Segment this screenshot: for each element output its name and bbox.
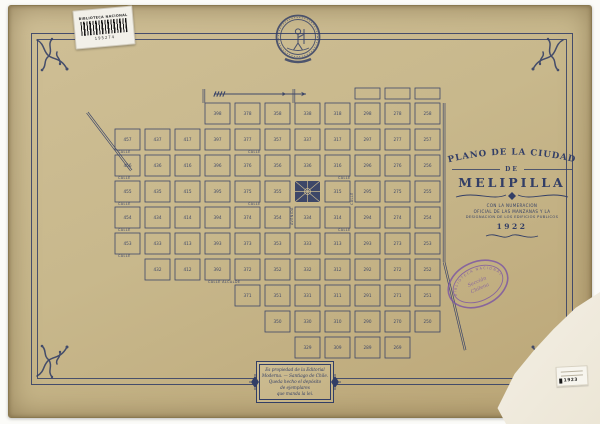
street-label: CALLE bbox=[118, 228, 131, 232]
flourish-icon bbox=[329, 374, 341, 390]
block-number: 397 bbox=[214, 137, 222, 142]
street-label: CALLE bbox=[248, 202, 261, 206]
block-number: 332 bbox=[304, 267, 312, 272]
block-number: 434 bbox=[154, 215, 162, 220]
street-label: AVENIDA bbox=[290, 207, 294, 225]
block-number: 315 bbox=[334, 189, 342, 194]
block-number: 377 bbox=[244, 137, 252, 142]
block-number: 294 bbox=[364, 215, 372, 220]
block-number: 252 bbox=[424, 267, 432, 272]
block-number: 358 bbox=[274, 111, 282, 116]
block-number: 275 bbox=[394, 189, 402, 194]
block-number: 298 bbox=[364, 111, 372, 116]
divider-flourish-icon bbox=[452, 191, 572, 201]
faded-writing bbox=[561, 374, 583, 376]
subtitle-line: DESIGNACION DE LOS EDIFICIOS PUBLICOS bbox=[444, 215, 580, 220]
block-number: 355 bbox=[274, 189, 282, 194]
svg-text:PLANO DE LA CIUDAD: PLANO DE LA CIUDAD bbox=[447, 147, 577, 165]
block-number: 352 bbox=[274, 267, 282, 272]
block-number: 310 bbox=[334, 319, 342, 324]
block-number: 455 bbox=[124, 189, 132, 194]
block-number: 314 bbox=[334, 215, 342, 220]
block-number: 253 bbox=[424, 241, 432, 246]
flourish-icon bbox=[249, 374, 261, 390]
imprint-line: que manda la lei. bbox=[277, 391, 314, 397]
block-number: 292 bbox=[364, 267, 372, 272]
block-number: 435 bbox=[154, 189, 162, 194]
block-number: 291 bbox=[364, 293, 372, 298]
city-block bbox=[355, 88, 380, 99]
block-number: 454 bbox=[124, 215, 132, 220]
publisher-seal-icon bbox=[274, 13, 322, 67]
block-number: 354 bbox=[274, 215, 282, 220]
block-number: 432 bbox=[154, 267, 162, 272]
block-number: 313 bbox=[334, 241, 342, 246]
block-number: 274 bbox=[394, 215, 402, 220]
block-number: 250 bbox=[424, 319, 432, 324]
block-number: 353 bbox=[274, 241, 282, 246]
block-number: 338 bbox=[304, 111, 312, 116]
block-number: 350 bbox=[274, 319, 282, 324]
street-label: CALLE bbox=[118, 254, 131, 258]
block-number: 293 bbox=[364, 241, 372, 246]
scanned-map-page: 3983783583383182982782584574374173973773… bbox=[0, 0, 600, 424]
block-number: 392 bbox=[214, 267, 222, 272]
street-label: CALLE bbox=[118, 176, 131, 180]
catalog-number: 1923 bbox=[564, 378, 578, 384]
city-name: MELIPILLA bbox=[444, 175, 580, 190]
block-number: 296 bbox=[364, 163, 372, 168]
imprint-text: Es propiedad de la Editorial Moderna. — … bbox=[259, 364, 331, 400]
block-number: 374 bbox=[244, 215, 252, 220]
block-number: 437 bbox=[154, 137, 162, 142]
flourish-rule bbox=[524, 169, 572, 170]
block-number: 270 bbox=[394, 319, 402, 324]
block-number: 271 bbox=[394, 293, 402, 298]
block-number: 337 bbox=[304, 137, 312, 142]
street-label: CALLE bbox=[118, 150, 131, 154]
block-number: 255 bbox=[424, 189, 432, 194]
subtitle-block: CON LA NUMERACION OFICIAL DE LAS MANZANA… bbox=[444, 203, 580, 220]
street-label: CALLE bbox=[118, 202, 131, 206]
block-number: 417 bbox=[184, 137, 192, 142]
block-number: 373 bbox=[244, 241, 252, 246]
barcode-icon bbox=[80, 18, 127, 36]
block-number: 357 bbox=[274, 137, 282, 142]
city-block bbox=[415, 88, 440, 99]
block-number: 372 bbox=[244, 267, 252, 272]
block-number: 356 bbox=[274, 163, 282, 168]
block-number: 456 bbox=[124, 163, 132, 168]
block-number: 334 bbox=[304, 215, 312, 220]
block-number: 330 bbox=[304, 319, 312, 324]
barcode-sticker: BIBLIOTECA NACIONAL 195274 bbox=[72, 5, 135, 49]
block-number: 278 bbox=[394, 111, 402, 116]
block-number: 416 bbox=[184, 163, 192, 168]
block-number: 290 bbox=[364, 319, 372, 324]
block-number: 396 bbox=[214, 163, 222, 168]
block-number: 297 bbox=[364, 137, 372, 142]
block-number: 273 bbox=[394, 241, 402, 246]
block-number: 453 bbox=[124, 241, 132, 246]
block-number: 257 bbox=[424, 137, 432, 142]
block-number: 457 bbox=[124, 137, 132, 142]
block-number: 333 bbox=[304, 241, 312, 246]
block-number: 289 bbox=[364, 345, 372, 350]
year-label: 1922 bbox=[444, 222, 580, 231]
block-number: 254 bbox=[424, 215, 432, 220]
year-flourish-icon bbox=[482, 232, 542, 240]
block-number: 371 bbox=[244, 293, 252, 298]
block-number: 276 bbox=[394, 163, 402, 168]
north-arrow-mark bbox=[283, 92, 287, 96]
street-label: CALLE bbox=[248, 150, 261, 154]
city-block bbox=[385, 88, 410, 99]
block-number: 414 bbox=[184, 215, 192, 220]
block-number: 436 bbox=[154, 163, 162, 168]
street-label: CALLE bbox=[350, 192, 354, 205]
title-cartouche: PLANO DE LA CIUDAD DE MELIPILLA CON LA N… bbox=[444, 141, 580, 240]
block-number: 311 bbox=[334, 293, 342, 298]
street-label: CALLE ALCALDE bbox=[208, 280, 240, 284]
block-number: 316 bbox=[334, 163, 342, 168]
block-number: 376 bbox=[244, 163, 252, 168]
block-number: 433 bbox=[154, 241, 162, 246]
catalog-sticker: 1923 bbox=[555, 365, 588, 387]
block-number: 329 bbox=[304, 345, 312, 350]
block-number: 351 bbox=[274, 293, 282, 298]
map-title: PLANO DE LA CIUDAD bbox=[444, 141, 580, 165]
block-number: 331 bbox=[304, 293, 312, 298]
block-number: 312 bbox=[334, 267, 342, 272]
ink-mark bbox=[559, 379, 562, 384]
block-number: 269 bbox=[394, 345, 402, 350]
title-de-row: DE bbox=[452, 166, 572, 173]
imprint-box: Es propiedad de la Editorial Moderna. — … bbox=[256, 361, 334, 403]
block-number: 398 bbox=[214, 111, 222, 116]
block-number: 258 bbox=[424, 111, 432, 116]
block-number: 393 bbox=[214, 241, 222, 246]
block-number: 251 bbox=[424, 293, 432, 298]
block-number: 395 bbox=[214, 189, 222, 194]
block-number: 295 bbox=[364, 189, 372, 194]
street-label: CALLE bbox=[338, 176, 351, 180]
block-number: 317 bbox=[334, 137, 342, 142]
block-number: 375 bbox=[244, 189, 252, 194]
block-number: 256 bbox=[424, 163, 432, 168]
block-number: 378 bbox=[244, 111, 252, 116]
block-number: 277 bbox=[394, 137, 402, 142]
block-number: 272 bbox=[394, 267, 402, 272]
street-label: CALLE bbox=[338, 228, 351, 232]
block-number: 412 bbox=[184, 267, 192, 272]
block-number: 394 bbox=[214, 215, 222, 220]
block-number: 415 bbox=[184, 189, 192, 194]
title-de-label: DE bbox=[505, 166, 519, 173]
block-number: 336 bbox=[304, 163, 312, 168]
flourish-rule bbox=[452, 169, 500, 170]
block-number: 413 bbox=[184, 241, 192, 246]
block-number: 309 bbox=[334, 345, 342, 350]
block-number: 318 bbox=[334, 111, 342, 116]
faded-writing bbox=[561, 370, 583, 372]
barcode-number: 195274 bbox=[94, 34, 115, 41]
